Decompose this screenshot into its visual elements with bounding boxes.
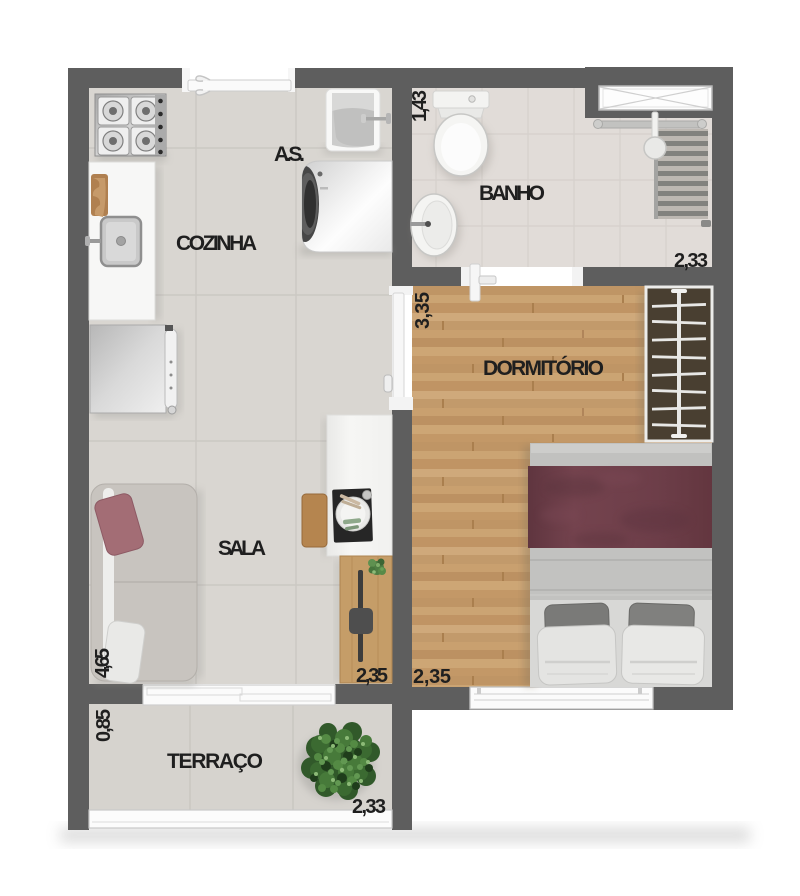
svg-text:2,35: 2,35 xyxy=(356,665,388,687)
svg-text:2,33: 2,33 xyxy=(674,250,708,272)
svg-text:2,33: 2,33 xyxy=(352,796,386,818)
svg-text:SALA: SALA xyxy=(218,537,266,560)
svg-text:0,85: 0,85 xyxy=(93,709,115,742)
svg-text:3,35: 3,35 xyxy=(412,292,434,329)
svg-text:2,35: 2,35 xyxy=(413,666,451,688)
svg-text:DORMITÓRIO: DORMITÓRIO xyxy=(483,356,604,380)
svg-text:1,43: 1,43 xyxy=(409,90,431,122)
svg-text:BANHO: BANHO xyxy=(479,182,545,205)
svg-text:4,65: 4,65 xyxy=(92,648,114,678)
svg-text:A.S.: A.S. xyxy=(274,143,305,166)
svg-text:TERRAÇO: TERRAÇO xyxy=(167,750,263,773)
svg-text:COZINHA: COZINHA xyxy=(176,232,257,255)
